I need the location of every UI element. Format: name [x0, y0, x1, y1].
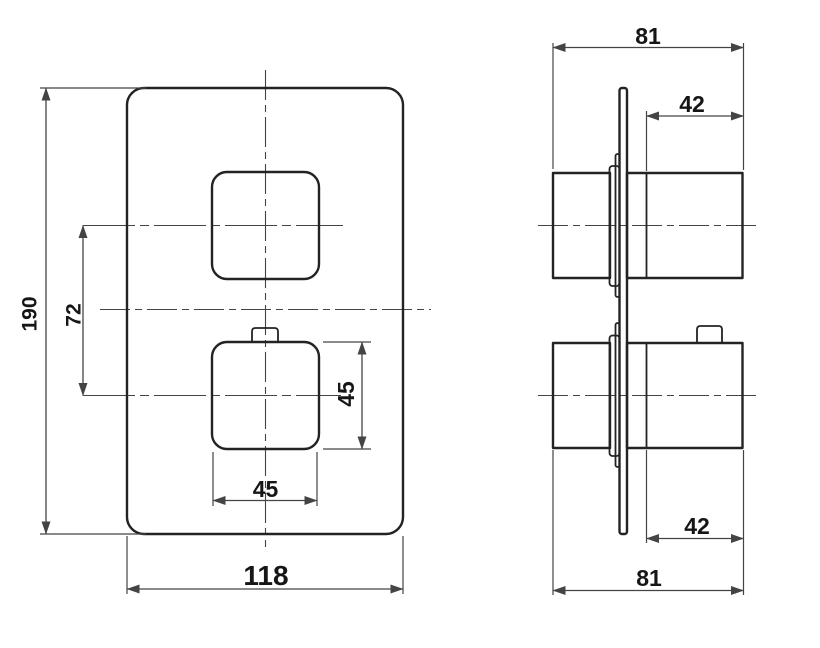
dim-81t-label: 81: [635, 23, 661, 49]
dim-42b-label: 42: [684, 513, 710, 539]
side-knob-tab: [697, 326, 722, 343]
side-view: 81 42 42 81: [538, 23, 757, 595]
dim-190-label: 190: [19, 296, 42, 331]
side-wall-plate: [620, 88, 628, 534]
dim-81b-label: 81: [636, 565, 662, 591]
dim-118-label: 118: [243, 560, 288, 591]
dim-72-label: 72: [63, 303, 86, 326]
dim-42t-label: 42: [679, 91, 705, 117]
drawing-canvas: 190 72 45 45 118: [0, 0, 820, 648]
dim-45h-label: 45: [253, 476, 279, 502]
technical-drawing: 190 72 45 45 118: [0, 0, 820, 648]
dim-45v-label: 45: [333, 381, 359, 407]
front-view: 190 72 45 45 118: [19, 70, 432, 594]
